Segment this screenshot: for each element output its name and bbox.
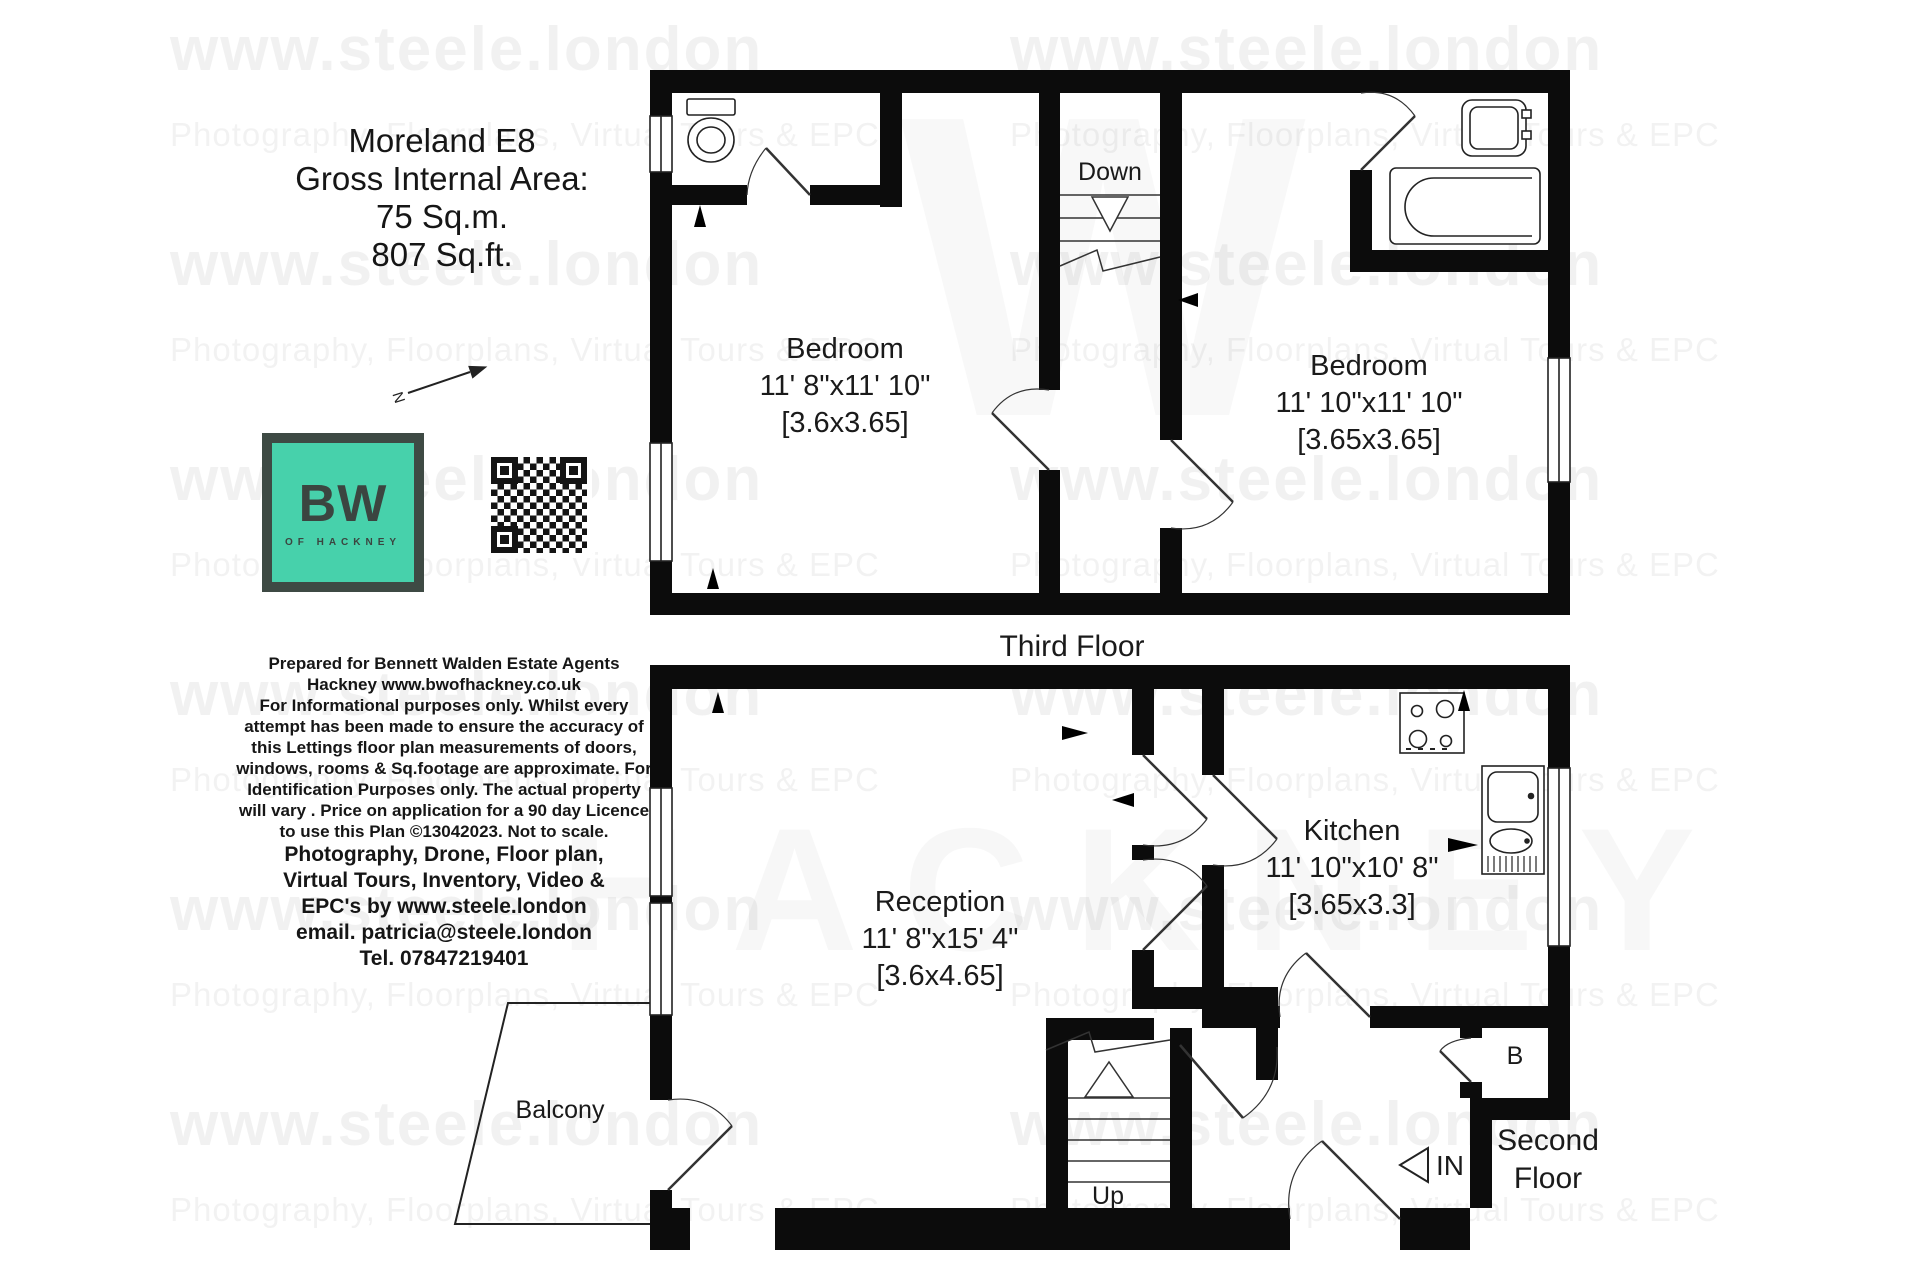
second-floor-label-line2: Floor: [1514, 1162, 1582, 1196]
entry-arrow-icon: [1400, 1148, 1428, 1182]
room-label-kitchen-name: Kitchen: [1304, 815, 1401, 848]
room-label-bedroom-left-name: Bedroom: [786, 333, 904, 366]
entry-door-icon: [1289, 1141, 1400, 1219]
room-label-reception-size: 11' 8"x15' 4": [862, 923, 1019, 956]
balcony-label: Balcony: [516, 1096, 605, 1125]
room-label-bedroom-left-metric: [3.6x3.65]: [781, 407, 908, 440]
third-floor-label: Third Floor: [999, 630, 1144, 664]
entry-label: IN: [1436, 1150, 1464, 1182]
room-label-kitchen-size: 11' 10"x10' 8": [1265, 852, 1438, 885]
bathtub-icon: [1390, 168, 1540, 244]
svg-text:N: N: [388, 390, 408, 406]
boiler-label: B: [1507, 1042, 1524, 1071]
north-arrow-icon: N: [388, 366, 486, 405]
room-label-kitchen-metric: [3.65x3.3]: [1288, 889, 1415, 922]
floor-plan-drawing: N: [0, 0, 1920, 1280]
toilet-icon: [687, 99, 735, 162]
bathroom-sink-icon: [1462, 100, 1531, 156]
stairs-up-label: Up: [1092, 1182, 1124, 1211]
second-floor-label-line1: Second: [1497, 1124, 1599, 1158]
room-label-bedroom-right-metric: [3.65x3.65]: [1297, 424, 1441, 457]
stairs-down-icon: [1060, 195, 1160, 271]
room-label-reception-metric: [3.6x4.65]: [876, 960, 1003, 993]
window-icon: [650, 768, 1570, 1015]
room-label-reception-name: Reception: [875, 886, 1006, 919]
stove-icon: [1400, 693, 1464, 753]
room-label-bedroom-right-name: Bedroom: [1310, 350, 1428, 383]
room-label-bedroom-right-size: 11' 10"x11' 10": [1276, 387, 1463, 420]
second-floor-plan: [455, 665, 1570, 1250]
kitchen-sink-icon: [1482, 766, 1544, 874]
room-label-bedroom-left-size: 11' 8"x11' 10": [760, 370, 931, 403]
floorplan-page: { "header": { "title": "Moreland E8", "s…: [0, 0, 1920, 1280]
stairs-down-label: Down: [1078, 158, 1142, 187]
